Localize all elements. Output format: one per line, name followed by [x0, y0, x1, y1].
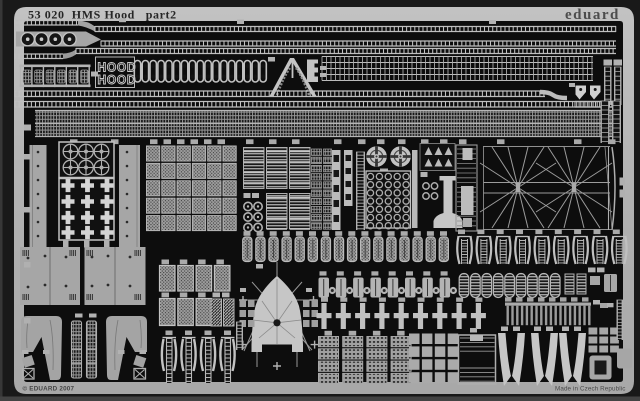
- svg-text:Made in Czech Republic: Made in Czech Republic: [555, 386, 625, 393]
- svg-text:eduard: eduard: [565, 7, 620, 23]
- svg-text:53 020 HMS Hood part2: 53 020 HMS Hood part2: [28, 8, 177, 22]
- svg-text:HOOD: HOOD: [98, 73, 137, 88]
- svg-text:© EDUARD 2007: © EDUARD 2007: [23, 385, 75, 393]
